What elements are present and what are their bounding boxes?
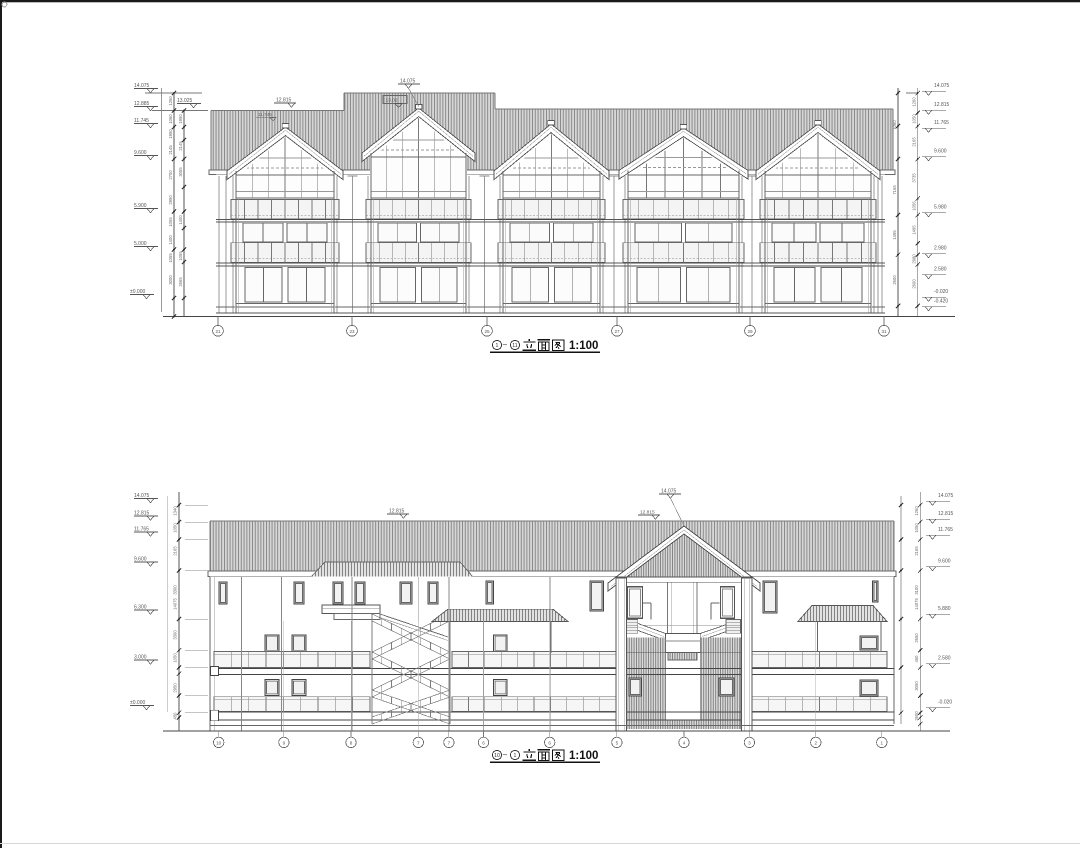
svg-text:1055: 1055 [168,253,173,263]
svg-text:1050: 1050 [173,523,178,533]
svg-text:8: 8 [350,741,353,746]
svg-text:14.075: 14.075 [661,489,677,495]
svg-text:-0.020: -0.020 [938,700,952,706]
svg-text:2145: 2145 [168,145,173,155]
svg-text:12.815: 12.815 [134,511,150,517]
svg-text:2600: 2600 [912,279,917,289]
svg-text:1260: 1260 [914,506,919,516]
svg-text:2950: 2950 [168,195,173,205]
svg-text:2145: 2145 [178,141,183,151]
svg-text:450: 450 [173,712,178,720]
svg-text:7165: 7165 [892,185,897,195]
svg-text:5.000: 5.000 [134,241,147,247]
svg-text:3050: 3050 [914,681,919,691]
svg-text:12.815: 12.815 [389,509,405,515]
svg-text:9.600: 9.600 [934,149,947,155]
svg-text:14.075: 14.075 [134,83,150,89]
svg-text:11: 11 [512,343,517,349]
svg-text:14075: 14075 [173,598,178,610]
svg-text:1260: 1260 [168,96,173,106]
svg-text:9.600: 9.600 [938,559,951,565]
svg-text:13.025: 13.025 [177,98,193,104]
svg-text:1056: 1056 [912,201,917,211]
svg-text:1055: 1055 [168,217,173,227]
svg-text:11.765: 11.765 [938,527,953,533]
svg-text:12.815: 12.815 [934,102,950,108]
svg-text:2600: 2600 [892,275,897,285]
svg-text:2165: 2165 [173,546,178,556]
svg-text:1340: 1340 [173,506,178,516]
svg-text:11.765: 11.765 [934,120,949,126]
svg-text:1: 1 [514,753,517,759]
svg-text:2600: 2600 [914,711,919,721]
svg-text:10: 10 [494,753,500,759]
svg-text:29: 29 [747,329,753,334]
svg-text:14.075: 14.075 [938,493,954,499]
svg-text:7: 7 [417,741,420,746]
svg-text:2.580: 2.580 [938,656,951,662]
svg-text:1495: 1495 [912,225,917,235]
svg-text:11.765: 11.765 [134,527,149,533]
svg-text:11.745: 11.745 [258,112,272,117]
svg-text:~: ~ [503,341,508,350]
svg-text:±0.000: ±0.000 [130,289,145,295]
svg-text:31: 31 [881,329,887,334]
svg-text:3100: 3100 [914,585,919,595]
svg-text:2165: 2165 [912,137,917,147]
svg-text:14075: 14075 [914,598,919,610]
svg-text:~: ~ [503,751,508,760]
svg-text:3055: 3055 [178,167,183,177]
svg-text:5.880: 5.880 [938,606,951,612]
svg-text:27: 27 [614,329,620,334]
svg-text:12.815: 12.815 [276,98,292,104]
svg-text:2.980: 2.980 [934,246,947,252]
svg-text:2700: 2700 [168,170,173,180]
svg-text:1050: 1050 [914,523,919,533]
svg-text:9: 9 [283,741,286,746]
svg-text:3.000: 3.000 [134,655,147,661]
svg-text:1950: 1950 [178,114,183,124]
svg-text:1400: 1400 [178,215,183,225]
svg-text:2165: 2165 [914,546,919,556]
svg-text:23: 23 [349,329,355,334]
svg-text:4: 4 [683,741,686,746]
svg-text:14.075: 14.075 [400,79,416,85]
svg-text:1950: 1950 [168,129,173,139]
svg-text:12.815: 12.815 [640,510,655,516]
svg-text:450: 450 [914,655,919,663]
svg-text:1060: 1060 [892,120,897,130]
svg-text:3000: 3000 [168,275,173,285]
svg-text:1: 1 [881,741,884,746]
svg-text:5.980: 5.980 [934,205,947,211]
svg-text:21: 21 [215,329,221,334]
svg-text:1260: 1260 [912,97,917,107]
svg-text:12.885: 12.885 [134,101,150,107]
svg-text:2650: 2650 [914,633,919,643]
svg-text:1:100: 1:100 [569,340,598,352]
svg-text:1400: 1400 [168,235,173,245]
svg-text:1060: 1060 [168,114,173,124]
svg-text:3735: 3735 [912,173,917,183]
svg-text:25: 25 [484,329,490,334]
svg-text:1495: 1495 [892,230,897,240]
svg-text:-0.020: -0.020 [934,289,948,295]
svg-text:3300: 3300 [173,585,178,595]
svg-text:3300: 3300 [173,630,178,640]
svg-text:5.900: 5.900 [134,203,147,209]
svg-text:2980: 2980 [912,254,917,264]
svg-text:1:100: 1:100 [569,750,598,762]
svg-text:7: 7 [448,741,451,746]
svg-text:1050: 1050 [173,653,178,663]
svg-text:±0.000: ±0.000 [130,700,145,706]
svg-text:2565: 2565 [178,277,183,287]
svg-text:12.815: 12.815 [938,511,954,517]
svg-text:11.745: 11.745 [134,118,149,124]
svg-text:9.600: 9.600 [134,150,147,156]
svg-text:1050: 1050 [912,114,917,124]
svg-text:6: 6 [482,741,485,746]
svg-text:6.300: 6.300 [134,605,147,611]
svg-text:14.075: 14.075 [934,83,950,89]
svg-text:5: 5 [616,741,619,746]
svg-text:3: 3 [748,741,751,746]
svg-text:1: 1 [496,343,499,349]
svg-text:9.600: 9.600 [134,557,147,563]
svg-text:2: 2 [815,741,818,746]
svg-text:14.075: 14.075 [134,493,150,499]
svg-text:-0.420: -0.420 [934,299,948,305]
svg-text:2.580: 2.580 [934,267,947,273]
svg-text:1055: 1055 [178,251,183,261]
svg-text:10: 10 [216,741,222,746]
svg-text:6: 6 [548,741,551,746]
svg-text:2950: 2950 [173,683,178,693]
svg-text:13.02: 13.02 [386,98,398,104]
